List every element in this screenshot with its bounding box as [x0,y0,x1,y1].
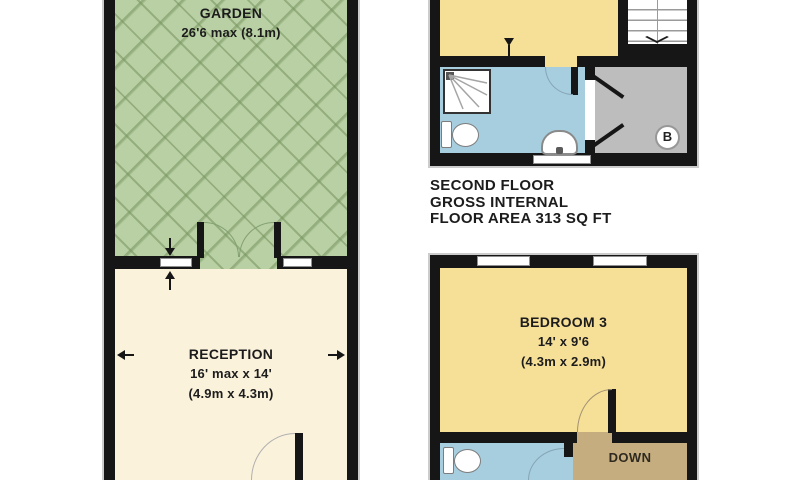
door-opening [577,432,612,443]
wall-segment [430,432,577,443]
wall-segment [104,0,115,480]
door-leaf [197,222,204,258]
measure-arrow-icon [508,45,510,57]
wall-segment [564,443,573,457]
window [533,155,591,164]
measure-arrow-icon [165,271,175,279]
boiler-badge: B [655,125,680,150]
toilet-icon [452,123,479,147]
reception-dimensions-metric: (4.9m x 4.3m) [114,384,348,404]
shower-icon [443,69,491,114]
wall-segment [430,255,440,480]
garden-dimensions: 26'6 max (8.1m) [114,23,348,43]
floor-note-line: GROSS INTERNAL [430,195,612,212]
wall-segment [430,56,545,67]
wall-segment [577,56,628,67]
door-leaf [295,433,303,480]
floorplan-image: GARDEN 26'6 max (8.1m) RECEPTION 16' max… [0,0,800,480]
wall-segment [347,0,358,480]
reception-label: RECEPTION [114,344,348,364]
window [477,256,530,266]
wall-segment [687,0,697,166]
toilet-icon [441,121,452,148]
garden-label: GARDEN [114,3,348,23]
bedroom3-label: BEDROOM 3 [440,312,687,332]
landing-down-label: DOWN [575,450,685,465]
bedroom3-text-block: BEDROOM 3 14' x 9'6 (4.3m x 2.9m) [440,312,687,372]
floor-note-line: SECOND FLOOR [430,178,612,195]
reception-dimensions-imperial: 16' max x 14' [114,364,348,384]
bedroom3-dimensions-metric: (4.3m x 2.9m) [440,352,687,372]
window [283,258,312,267]
window [593,256,647,266]
floor-note: SECOND FLOOR GROSS INTERNAL FLOOR AREA 3… [430,178,612,228]
bedroom3-dimensions-imperial: 14' x 9'6 [440,332,687,352]
wall-segment [628,44,687,67]
second-floor-room [440,0,620,56]
toilet-icon [454,449,481,473]
measure-arrow-icon [169,279,171,290]
door-opening [545,56,577,67]
sink-tap [556,147,563,154]
measure-arrow-icon [165,248,175,256]
wall-segment [612,432,697,443]
floor-note-line: FLOOR AREA 313 SQ FT [430,211,612,228]
garden-text-block: GARDEN 26'6 max (8.1m) [114,3,348,43]
door-leaf [274,222,281,258]
toilet-icon [443,447,454,474]
boiler-label: B [663,129,672,144]
wall-segment [430,0,440,166]
reception-text-block: RECEPTION 16' max x 14' (4.9m x 4.3m) [114,344,348,404]
wall-segment [687,255,697,480]
wall-segment [430,255,697,268]
window [160,258,192,267]
